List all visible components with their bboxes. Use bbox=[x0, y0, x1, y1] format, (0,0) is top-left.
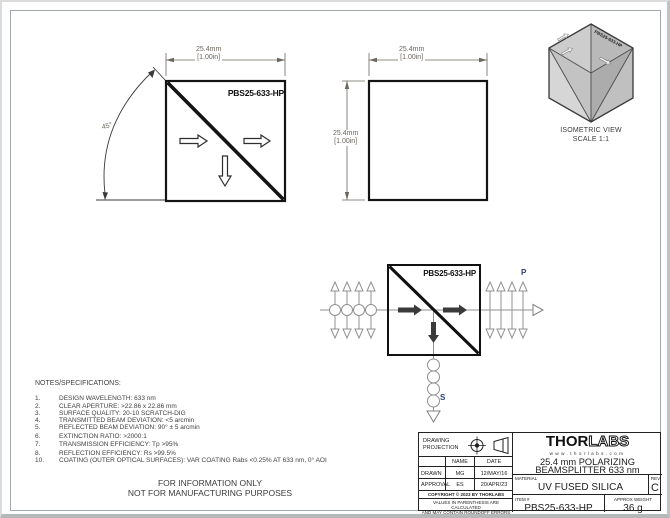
thorlabs-logo: THORLABS bbox=[513, 434, 662, 449]
weight-label: APPROX WEIGHT bbox=[604, 497, 662, 502]
approval-date: 20/APR/23 bbox=[475, 482, 513, 488]
p-polarization-label: P bbox=[521, 268, 526, 277]
col-header-name: NAME bbox=[445, 459, 475, 465]
note-item: 2.CLEAR APERTURE: >22.86 x 22.86 mm bbox=[35, 403, 365, 410]
beam-cube-part-label: PBS25-633-HP bbox=[406, 269, 476, 278]
item-label: ITEM # bbox=[515, 497, 530, 502]
s-polarization-label: S bbox=[440, 393, 445, 402]
drawing-projection-label: DRAWING PROJECTION bbox=[423, 438, 458, 451]
approval-name: ES bbox=[445, 482, 475, 488]
side-top-dim-label: 25.4mm[1.00in] bbox=[398, 46, 425, 62]
reflected-polarization-symbols bbox=[428, 359, 440, 407]
rev-label: REV bbox=[649, 476, 662, 481]
weight-value: 36 g bbox=[604, 503, 662, 514]
side-left-dim-label: 25.4mm[1.00in] bbox=[332, 130, 359, 146]
information-notice: FOR INFORMATION ONLY NOT FOR MANUFACTURI… bbox=[90, 479, 330, 498]
front-top-dim-label: 25.4mm[1.00in] bbox=[195, 46, 222, 62]
side-view bbox=[342, 53, 487, 200]
isometric-caption: ISOMETRIC VIEWSCALE 1:1 bbox=[531, 127, 651, 144]
col-header-date: DATE bbox=[475, 459, 513, 465]
disclaimer-text: VALUES IN PARENTHESIS ARE CALCULATED AND… bbox=[419, 500, 513, 516]
note-item: 7.TRANSMISSION EFFICIENCY: Tp >95% bbox=[35, 441, 365, 448]
thorlabs-website: www.thorlabs.com bbox=[513, 451, 662, 456]
note-item: 10.COATING (OUTER OPTICAL SURFACES): VAR… bbox=[35, 457, 365, 464]
note-item: 1.DESIGN WAVELENGTH: 633 nm bbox=[35, 395, 365, 402]
item-value: PBS25-633-HP bbox=[513, 503, 604, 514]
angle-arc bbox=[104, 71, 153, 194]
note-item: 8.REFLECTION EFFICIENCY: Rs >99.5% bbox=[35, 450, 365, 457]
front-view-part-label: PBS25-633-HP bbox=[214, 88, 284, 98]
title-block: DRAWING PROJECTION NAME DATE DRAWN MG 12… bbox=[418, 432, 661, 511]
notes-heading: NOTES/SPECIFICATIONS: bbox=[35, 380, 365, 387]
front-view bbox=[96, 53, 285, 201]
note-item: 6.EXTINCTION RATIO: >2000:1 bbox=[35, 433, 365, 440]
input-polarization-symbols bbox=[330, 282, 377, 338]
material-label: MATERIAL bbox=[515, 476, 537, 481]
side-view-cube bbox=[369, 81, 487, 200]
note-item: 5.REFLECTED BEAM DEVIATION: 90° ± 5 arcm… bbox=[35, 424, 365, 431]
isometric-view bbox=[549, 24, 633, 122]
notes-specifications: NOTES/SPECIFICATIONS: 1.DESIGN WAVELENGT… bbox=[35, 380, 365, 464]
side-top-dimension bbox=[369, 53, 487, 76]
product-title: 25.4 mm POLARIZING BEAMSPLITTER 633 nm bbox=[513, 458, 662, 475]
drawn-date: 12/MAY/16 bbox=[475, 471, 513, 477]
note-item: 3.SURFACE QUALITY: 20-10 SCRATCH-DIG bbox=[35, 410, 365, 417]
front-top-dimension bbox=[166, 53, 285, 76]
drawn-row-label: DRAWN bbox=[421, 471, 442, 477]
rev-value: C bbox=[648, 482, 662, 494]
output-beam-arrowhead bbox=[533, 305, 543, 316]
reflected-beam-arrowhead bbox=[427, 411, 440, 422]
projection-symbols bbox=[463, 435, 513, 456]
material-value: UV FUSED SILICA bbox=[513, 482, 648, 493]
drawing-sheet: 25.4mm[1.00in] PBS25-633-HP 45° 25.4mm[1… bbox=[0, 0, 670, 518]
drawn-name: MG bbox=[445, 471, 475, 477]
copyright-text: COPYRIGHT © 2023 BY THORLABS bbox=[419, 492, 513, 497]
